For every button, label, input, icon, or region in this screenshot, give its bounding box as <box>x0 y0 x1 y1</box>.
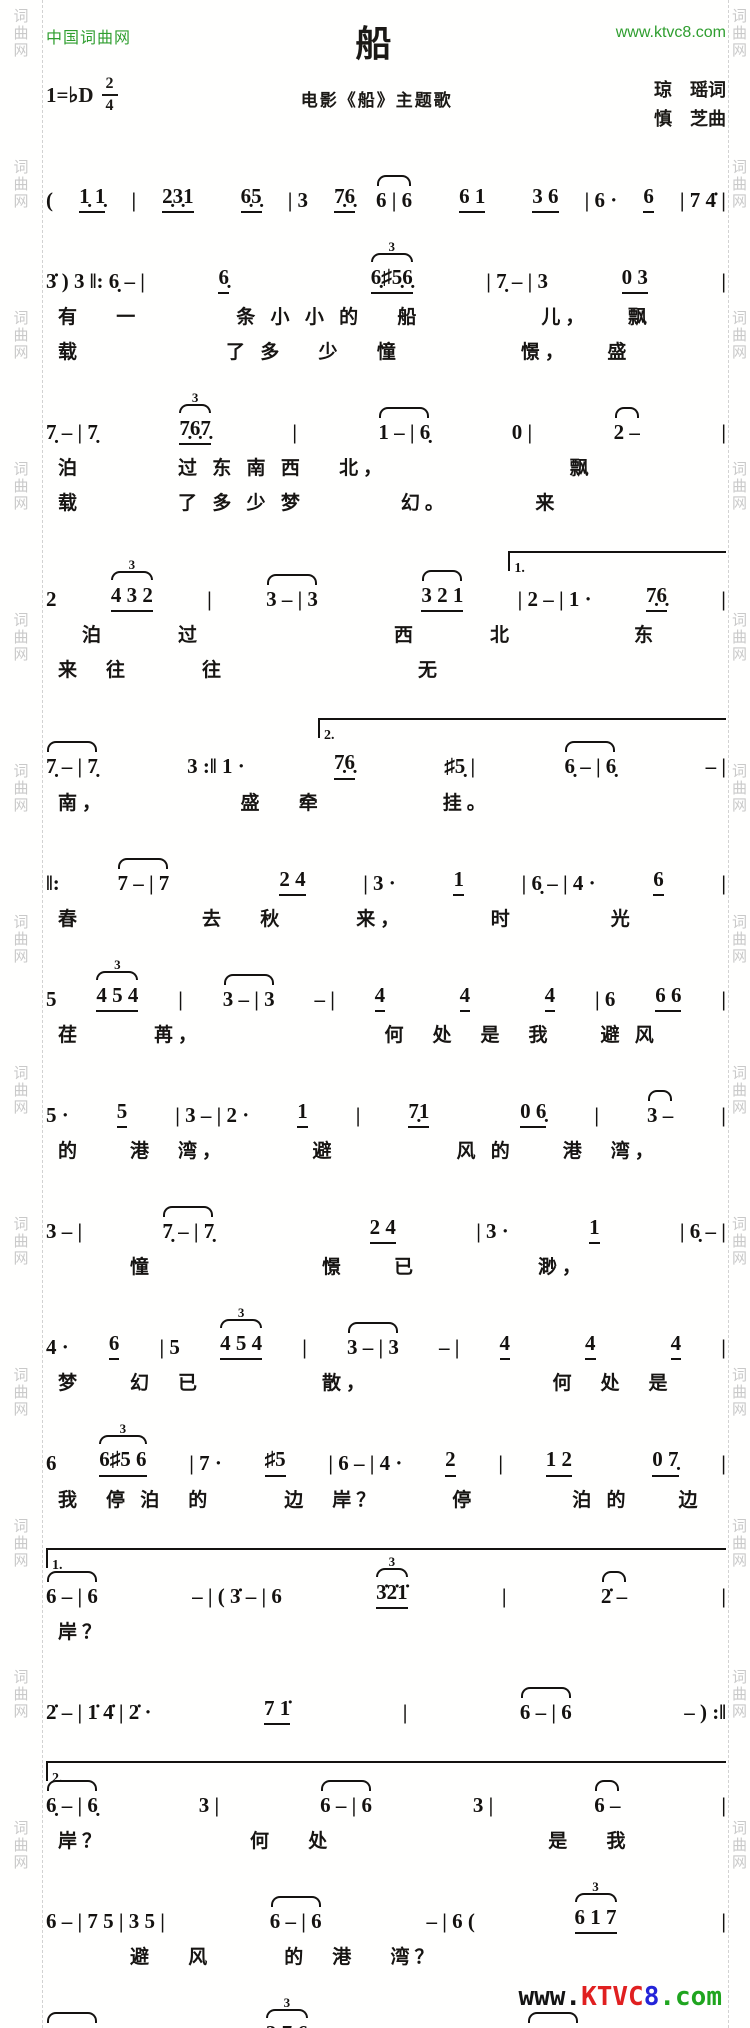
lyrics-line: 荏 苒， 何 处 是 我 避 风 <box>58 1020 726 1047</box>
notation-token: 4 <box>500 1331 511 1360</box>
notation-token: | <box>716 1335 726 1360</box>
watermark-char: 词 <box>0 1216 42 1233</box>
notation-token: | <box>716 987 726 1012</box>
watermark-text-group: 词曲网 <box>0 1518 42 1569</box>
watermark-text-group: 词曲网 <box>729 310 750 361</box>
watermark-char: 词 <box>729 914 750 931</box>
watermark-char: 词 <box>0 1669 42 1686</box>
lyrics-line: 南， 盛 牵 挂。 <box>58 788 726 815</box>
notation-token: 3 :‖ 1 · <box>182 754 250 779</box>
notation-token: 4 3 2 <box>111 583 153 612</box>
music-system-5: 2.7̣ – | 7̣ 3 :‖ 1 · 7̣6̣ ♯5̣ | 6̣ – | 6… <box>46 710 726 814</box>
notation-token: 7̣ – | 7̣ <box>46 420 103 445</box>
watermark-char: 词 <box>0 612 42 629</box>
notation-token: 1̣ 1̣ <box>79 184 105 213</box>
notation-token: 5 <box>117 1099 128 1128</box>
notation-token: | <box>716 1909 726 1934</box>
credits: 琼 瑶词 慎 芝曲 <box>636 76 726 134</box>
notation-token: 6 – | 6 <box>270 1909 322 1934</box>
volta-bracket: 1. <box>46 1548 726 1568</box>
watermark-char: 曲 <box>0 780 42 797</box>
song-title: 船 <box>355 26 391 62</box>
notation-line: 5 4 5 4 | 3 – | 3 – | 4 4 4 | 6 6 6 | <box>46 959 726 1012</box>
notation-token: | 7 · <box>184 1451 227 1476</box>
lyrics-line: 岸？ 何 处 是 我 <box>58 1826 726 1853</box>
notation-token: | 3 · <box>471 1219 514 1244</box>
notation-token <box>289 1219 294 1244</box>
notation-token: 5 · <box>46 1103 74 1128</box>
watermark-text-group: 词曲网 <box>0 612 42 663</box>
notation-token: | <box>589 1103 604 1128</box>
watermark-char: 网 <box>729 1552 750 1569</box>
notation-line: 4 · 6 | 5 4 5 4 | 3 – | 3 – | 4 4 4 | <box>46 1307 726 1360</box>
watermark-text-group: 词曲网 <box>0 310 42 361</box>
watermark-char: 曲 <box>0 176 42 193</box>
music-system-7: 5 4 5 4 | 3 – | 3 – | 4 4 4 | 6 6 6 |荏 苒… <box>46 959 726 1047</box>
notation-token: | 3 · <box>358 871 401 896</box>
watermark-char: 网 <box>729 1250 750 1267</box>
notation-token: 2 <box>46 587 62 612</box>
watermark-text-group: 词曲网 <box>729 612 750 663</box>
notation-token: 7̣6̣ <box>646 583 667 612</box>
watermark-char: 曲 <box>729 1535 750 1552</box>
notation-token: 6 1 7 <box>575 1905 617 1934</box>
watermark-char: 网 <box>0 646 42 663</box>
watermark-text-group: 词曲网 <box>0 1367 42 1418</box>
lyrics-line: 泊 过 东 南 西 北， 飘 <box>58 453 726 480</box>
notation-token: 4 <box>671 1331 682 1360</box>
watermark-text-group: 词曲网 <box>0 914 42 965</box>
notation-token: 6 <box>46 1451 62 1476</box>
lyrics-line: 来 往 往 无 <box>58 655 726 682</box>
watermark-char: 曲 <box>729 327 750 344</box>
watermark-char: 曲 <box>0 1082 42 1099</box>
watermark-char: 词 <box>0 1367 42 1384</box>
watermark-char: 词 <box>729 763 750 780</box>
notation-token: | 6 – | 4 · <box>323 1451 408 1476</box>
watermark-text-group: 词曲网 <box>729 1820 750 1871</box>
music-system-2: 3̇ ) 3 ‖: 6̣ – | 6̣ 6̣♯5̣6̣ | 7̣ – | 3 0… <box>46 241 726 364</box>
sheet-content: 中国词曲网 船 www.ktvc8.com 1=♭D 2 4 电影《船》主题歌 … <box>46 0 726 2028</box>
watermark-char: 曲 <box>729 931 750 948</box>
notation-token: 0 7̣ <box>652 1447 678 1476</box>
watermark-char: 曲 <box>729 1082 750 1099</box>
notation-token <box>610 1451 615 1476</box>
lyrics-line: 春 去 秋 来， 时 光 <box>58 904 726 931</box>
footer-logo-ktvc: KTVC <box>581 1982 644 2012</box>
notation-token: – ) :‖ <box>679 1700 726 1725</box>
notation-token: 6̣ – | 6̣ <box>564 754 616 779</box>
notation-token: 4 5 4 <box>220 1331 262 1360</box>
watermark-char: 网 <box>0 193 42 210</box>
watermark-char: 曲 <box>729 780 750 797</box>
notation-token: – | 6 ( <box>421 1909 475 1934</box>
notation-token: 0 3 <box>622 265 648 294</box>
notation-token: 6 <box>643 184 654 213</box>
notation-token: | 6̣ – | <box>675 1219 726 1244</box>
watermark-text-group: 词曲网 <box>729 914 750 965</box>
notation-token: | 3 – | 2 · <box>170 1103 255 1128</box>
notation-line: 2.6̣ – | 6̣ 3 | 6 – | 6 3 | 6 – | <box>46 1753 726 1818</box>
notation-token: | 2 – | 1 · <box>512 587 597 612</box>
notation-token: 6 <box>653 867 664 896</box>
watermark-char: 曲 <box>729 1384 750 1401</box>
notation-token: – | <box>434 1335 465 1360</box>
watermark-char: 网 <box>729 495 750 512</box>
watermark-text-group: 词曲网 <box>0 8 42 59</box>
watermark-char: 曲 <box>0 1384 42 1401</box>
footer-logo-www: www. <box>518 1982 581 2012</box>
notation-token: ‖: <box>46 871 65 896</box>
notation-token: | <box>716 269 726 294</box>
time-signature-top: 2 <box>102 76 118 96</box>
watermark-char: 曲 <box>0 1686 42 1703</box>
notation-token <box>420 987 425 1012</box>
volta-bracket: 1. <box>508 551 726 571</box>
notation-line: 5 · 5 | 3 – | 2 · 1 | 7̣1 0 6̣ | 3 – | <box>46 1075 726 1128</box>
music-system-9: 3 – | 7̣ – | 7̣ 2 4 | 3 · 1 | 6̣ – | 憧 憬… <box>46 1191 726 1279</box>
watermark-char: 网 <box>0 1250 42 1267</box>
notation-token: 6̣ <box>218 265 229 294</box>
notation-token: 2 4 <box>370 1215 396 1244</box>
notation-token: 1 2 <box>546 1447 572 1476</box>
notation-token: 2 – <box>614 420 640 445</box>
notation-token: | <box>493 1451 508 1476</box>
watermark-char: 曲 <box>729 629 750 646</box>
lyricist-credit: 琼 瑶词 <box>636 76 726 105</box>
watermark-text-group: 词曲网 <box>729 1518 750 1569</box>
notation-line: 3 – | 7̣ – | 7̣ 2 4 | 3 · 1 | 6̣ – | <box>46 1191 726 1244</box>
watermark-char: 曲 <box>0 931 42 948</box>
score: ( 1̣ 1̣ | 2̣3̣1 6̣5̣ | 3 7̣6̣6 | 6 6 1 3… <box>46 160 726 2028</box>
notation-token: 6̣ – | 6̣ <box>46 1793 98 1818</box>
top-bar: 中国词曲网 船 www.ktvc8.com <box>46 0 726 62</box>
watermark-char: 曲 <box>729 1233 750 1250</box>
notation-token: 7̣6̣ <box>334 184 355 213</box>
watermark-char: 网 <box>0 1854 42 1871</box>
watermark-char: 网 <box>729 948 750 965</box>
volta-bracket: 2. <box>318 718 726 738</box>
watermark-char: 网 <box>0 1401 42 1418</box>
song-subtitle: 电影《船》主题歌 <box>118 76 636 111</box>
watermark-text-group: 词曲网 <box>0 159 42 210</box>
notation-token: 3 6 <box>532 184 558 213</box>
notation-token: 6 – <box>594 1793 620 1818</box>
notation-token <box>433 188 438 213</box>
lyrics-line: 的 港 湾， 避 风 的 港 湾， <box>58 1136 726 1163</box>
watermark-char: 词 <box>729 1669 750 1686</box>
notation-token: 6 <box>109 1331 120 1360</box>
watermark-text-group: 词曲网 <box>729 461 750 512</box>
notation-token: 7̣1 <box>408 1099 429 1128</box>
music-system-3: 7̣ – | 7̣ 7̣6̣7̣ | 1 – | 6̣ 0 | 2 – |泊 过… <box>46 392 726 515</box>
watermark-char: 网 <box>729 1854 750 1871</box>
watermark-char: 网 <box>0 797 42 814</box>
notation-token: | <box>202 587 217 612</box>
site-url-link[interactable]: www.ktvc8.com <box>616 24 726 42</box>
lyrics-line: 岸？ <box>58 1617 726 1644</box>
music-system-10: 4 · 6 | 5 4 5 4 | 3 – | 3 – | 4 4 4 |梦 幻… <box>46 1307 726 1395</box>
notation-token: 4 <box>545 983 556 1012</box>
notation-token: 4 <box>460 983 471 1012</box>
watermark-char: 曲 <box>729 25 750 42</box>
watermark-char: 词 <box>729 1820 750 1837</box>
watermark-left-column: 词曲网词曲网词曲网词曲网词曲网词曲网词曲网词曲网词曲网词曲网词曲网词曲网词曲网 <box>0 0 43 2028</box>
notation-token: | 7̣ – | 3 <box>481 269 553 294</box>
watermark-char: 词 <box>0 310 42 327</box>
notation-token: 6 – | 6 <box>320 1793 372 1818</box>
watermark-text-group: 词曲网 <box>0 1216 42 1267</box>
watermark-text-group: 词曲网 <box>729 1065 750 1116</box>
notation-token <box>215 188 220 213</box>
watermark-char: 网 <box>729 646 750 663</box>
notation-token <box>506 188 511 213</box>
watermark-char: 词 <box>0 8 42 25</box>
volta-label: 1. <box>510 560 525 578</box>
notation-token: | <box>716 1584 726 1609</box>
lyrics-line: 梦 幻 已 散， 何 处 是 <box>58 1368 726 1395</box>
notation-token: | <box>173 987 188 1012</box>
notation-token: 2 4 <box>279 867 305 896</box>
music-system-11: 6 6♯5 6 | 7 · ♯5 | 6 – | 4 · 2 | 1 2 0 7… <box>46 1423 726 1511</box>
notation-token: | <box>397 1700 412 1725</box>
lyrics-line: 有 一 条 小 小 的 船 儿， 飘 <box>58 302 726 329</box>
music-system-6: ‖: 7 – | 7 2 4 | 3 · 1 | 6̣ – | 4 · 6 |春… <box>46 843 726 931</box>
notation-line: 1.2 4 3 2 | 3 – | 3 3 2 1 | 2 – | 1 · 7̣… <box>46 543 726 612</box>
watermark-char: 曲 <box>729 478 750 495</box>
notation-token: 6̣5̣ <box>241 184 262 213</box>
notation-token: | <box>716 587 726 612</box>
notation-token: 6 1 <box>459 184 485 213</box>
notation-token: 5 <box>46 987 62 1012</box>
watermark-text-group: 词曲网 <box>729 159 750 210</box>
footer-logo: www.KTVC8.com <box>518 1982 722 2012</box>
notation-token: 2̣3̣1 <box>162 184 194 213</box>
watermark-char: 网 <box>729 193 750 210</box>
notation-token: 7̣ – | 7̣ <box>162 1219 214 1244</box>
notation-token: 7̣6̣7̣ <box>179 416 211 445</box>
lyrics-line: 载 了 多 少 憧 憬， 盛 <box>58 337 726 364</box>
notation-token: 7̣ – | 7̣ <box>46 754 98 779</box>
time-signature: 2 4 <box>102 76 118 114</box>
footer-logo-8: 8 <box>644 1982 660 2012</box>
notation-token: ( <box>46 188 58 213</box>
notation-token: – | <box>700 754 726 779</box>
notation-token: 2̇ – | 1̇ 4̇ | 2̇ · <box>46 1700 157 1725</box>
notation-token: 2̇ – <box>601 1584 627 1609</box>
watermark-text-group: 词曲网 <box>729 8 750 59</box>
notation-line: 2̇ – | 1̇ 4̇ | 2̇ · 7 1̇ | 6 – | 6 – ) :… <box>46 1672 726 1725</box>
lyrics-line: 憧 憬 已 渺， <box>58 1252 726 1279</box>
notation-line: 3̇ ) 3 ‖: 6̣ – | 6̣ 6̣♯5̣6̣ | 7̣ – | 3 0… <box>46 241 726 294</box>
watermark-char: 曲 <box>0 1535 42 1552</box>
notation-token: | <box>287 420 302 445</box>
notation-token: 6̣♯5̣6̣ <box>371 265 413 294</box>
notation-token: 3 – | <box>46 1219 87 1244</box>
notation-token: 6 – | 7 5 | 3 5 | <box>46 1909 170 1934</box>
notation-token: 3̇2̇1̇ <box>376 1580 408 1609</box>
watermark-char: 词 <box>0 1518 42 1535</box>
composer-credit: 慎 芝曲 <box>636 105 726 134</box>
notation-token: | 6 <box>590 987 621 1012</box>
notation-token: | <box>297 1335 312 1360</box>
notation-token: 6 – | 6 <box>46 1584 98 1609</box>
notation-line: 7̣ – | 7̣ 7̣6̣7̣ | 1 – | 6̣ 0 | 2 – | <box>46 392 726 445</box>
watermark-char: 词 <box>0 1065 42 1082</box>
notation-token <box>367 587 372 612</box>
notation-token: 1 <box>453 867 464 896</box>
watermark-char: 词 <box>0 461 42 478</box>
watermark-char: 词 <box>0 159 42 176</box>
watermark-char: 词 <box>0 763 42 780</box>
music-system-8: 5 · 5 | 3 – | 2 · 1 | 7̣1 0 6̣ | 3 – |的 … <box>46 1075 726 1163</box>
music-system-12: 1.6 – | 6 – | ( 3̇ – | 6 3̇2̇1̇ | 2̇ – |… <box>46 1540 726 1644</box>
notation-token: 3̇ ) 3 ‖: 6̣ – | <box>46 269 150 294</box>
notation-line: 1.6 – | 6 – | ( 3̇ – | 6 3̇2̇1̇ | 2̇ – | <box>46 1540 726 1609</box>
notation-token: 3 | <box>468 1793 499 1818</box>
watermark-text-group: 词曲网 <box>729 763 750 814</box>
notation-token: | <box>716 1793 726 1818</box>
watermark-char: 网 <box>0 1552 42 1569</box>
notation-token: 7 – | 7 <box>117 871 169 896</box>
notation-token <box>630 1335 635 1360</box>
watermark-char: 曲 <box>0 1837 42 1854</box>
lyrics-line: 泊 过 西 北 东 <box>58 620 726 647</box>
notation-token: | <box>351 1103 366 1128</box>
notation-token: 1 <box>589 1215 600 1244</box>
watermark-char: 曲 <box>0 1233 42 1250</box>
notation-token: 0 | <box>507 420 538 445</box>
watermark-char: 词 <box>729 612 750 629</box>
watermark-char: 网 <box>0 1099 42 1116</box>
notation-token: | <box>126 188 141 213</box>
watermark-char: 网 <box>729 797 750 814</box>
footer-logo-com: .com <box>659 1982 722 2012</box>
site-name-link[interactable]: 中国词曲网 <box>46 24 131 48</box>
watermark-text-group: 词曲网 <box>729 1367 750 1418</box>
watermark-char: 曲 <box>0 478 42 495</box>
watermark-char: 词 <box>0 1820 42 1837</box>
watermark-char: 词 <box>729 1065 750 1082</box>
volta-bracket: 2. <box>46 1761 726 1781</box>
notation-token: 3 – <box>647 1103 673 1128</box>
watermark-char: 曲 <box>729 1837 750 1854</box>
notation-token: 4 · <box>46 1335 74 1360</box>
notation-token: 1 – | 6̣ <box>378 420 430 445</box>
watermark-text-group: 词曲网 <box>0 1820 42 1871</box>
music-system-1: ( 1̣ 1̣ | 2̣3̣1 6̣5̣ | 3 7̣6̣6 | 6 6 1 3… <box>46 160 726 213</box>
music-system-4: 1.2 4 3 2 | 3 – | 3 3 2 1 | 2 – | 1 · 7̣… <box>46 543 726 682</box>
notation-token: ♯5̣ | <box>439 754 480 779</box>
watermark-char: 曲 <box>0 629 42 646</box>
notation-token: 4 <box>585 1331 596 1360</box>
notation-token: | 6 · <box>579 188 622 213</box>
notation-token: 2 <box>445 1447 456 1476</box>
notation-token: 4 5 4 <box>96 983 138 1012</box>
time-signature-bottom: 4 <box>106 96 114 114</box>
notation-token <box>297 269 302 294</box>
notation-token: 3 – | 3 <box>347 1335 399 1360</box>
notation-token <box>222 871 227 896</box>
notation-token: 3 – | 3 <box>223 987 275 1012</box>
watermark-char: 网 <box>0 495 42 512</box>
watermark-text-group: 词曲网 <box>729 1669 750 1720</box>
notation-token: 1 <box>297 1099 308 1128</box>
lyrics-line: 我 停 泊 的 边 岸？ 停 泊 的 边 <box>58 1485 726 1512</box>
notation-token: – | ( 3̇ – | 6 <box>187 1584 287 1609</box>
watermark-char: 曲 <box>729 176 750 193</box>
notation-token: | 7 4̇ | <box>675 188 726 213</box>
notation-token: 3 2 1 <box>421 583 463 612</box>
notation-token: 6 – | 6 <box>520 1700 572 1725</box>
key-signature-text: 1=♭D <box>46 83 94 108</box>
notation-token: | 5 <box>154 1335 185 1360</box>
watermark-char: 网 <box>0 42 42 59</box>
watermark-char: 网 <box>729 1401 750 1418</box>
watermark-char: 网 <box>0 344 42 361</box>
watermark-char: 网 <box>729 1099 750 1116</box>
watermark-char: 词 <box>729 159 750 176</box>
notation-token: | 6̣ – | 4 · <box>516 871 601 896</box>
watermark-text-group: 词曲网 <box>0 461 42 512</box>
watermark-char: 网 <box>0 948 42 965</box>
watermark-char: 网 <box>729 344 750 361</box>
watermark-char: 词 <box>729 1518 750 1535</box>
notation-token: 7 1̇ <box>264 1696 290 1725</box>
notation-token: 6 6 <box>655 983 681 1012</box>
watermark-char: 词 <box>729 1216 750 1233</box>
notation-line: ( 1̣ 1̣ | 2̣3̣1 6̣5̣ | 3 7̣6̣6 | 6 6 1 3… <box>46 160 726 213</box>
music-system-15: 6 – | 7 5 | 3 5 | 6 – | 6 – | 6 (6 1 7 |… <box>46 1881 726 1969</box>
watermark-char: 曲 <box>0 327 42 344</box>
watermark-char: 曲 <box>729 1686 750 1703</box>
notation-token <box>505 987 510 1012</box>
notation-token: 7̣6̣ <box>334 750 355 779</box>
notation-token: 4 <box>375 983 386 1012</box>
notation-token: | <box>716 420 726 445</box>
watermark-char: 词 <box>0 914 42 931</box>
lyrics-line: 避 风 的 港 湾？ <box>58 1942 726 1969</box>
notation-token: 3 7 6 <box>266 2021 308 2028</box>
notation-token: 3 | <box>194 1793 225 1818</box>
notation-token: | 3 <box>282 188 313 213</box>
watermark-char: 网 <box>0 1703 42 1720</box>
music-system-14: 2.6̣ – | 6̣ 3 | 6 – | 6 3 | 6 – |岸？ 何 处 … <box>46 1753 726 1853</box>
watermark-text-group: 词曲网 <box>729 1216 750 1267</box>
notation-line: 6 6♯5 6 | 7 · ♯5 | 6 – | 4 · 2 | 1 2 0 7… <box>46 1423 726 1476</box>
watermark-char: 词 <box>729 461 750 478</box>
meta-row: 1=♭D 2 4 电影《船》主题歌 琼 瑶词 慎 芝曲 <box>46 76 726 134</box>
notation-token: – | <box>309 987 340 1012</box>
notation-line: 2.7̣ – | 7̣ 3 :‖ 1 · 7̣6̣ ♯5̣ | 6̣ – | 6… <box>46 710 726 779</box>
lyrics-line: 载 了 多 少 梦 幻。 来 <box>58 488 726 515</box>
key-signature: 1=♭D 2 4 <box>46 76 118 114</box>
notation-line: 6 – | 7 5 | 3 5 | 6 – | 6 – | 6 (6 1 7 | <box>46 1881 726 1934</box>
watermark-char: 词 <box>729 310 750 327</box>
sheet-music-page: 词曲网词曲网词曲网词曲网词曲网词曲网词曲网词曲网词曲网词曲网词曲网词曲网词曲网 … <box>0 0 750 2028</box>
notation-token: | <box>497 1584 512 1609</box>
watermark-char: 曲 <box>0 25 42 42</box>
watermark-right-column: 词曲网词曲网词曲网词曲网词曲网词曲网词曲网词曲网词曲网词曲网词曲网词曲网词曲网 <box>728 0 750 2028</box>
watermark-text-group: 词曲网 <box>0 1669 42 1720</box>
notation-token: 6 | 6 <box>376 188 412 213</box>
notation-token: | <box>716 1451 726 1476</box>
notation-token <box>545 1335 550 1360</box>
watermark-text-group: 词曲网 <box>0 1065 42 1116</box>
notation-line: ‖: 7 – | 7 2 4 | 3 · 1 | 6̣ – | 4 · 6 | <box>46 843 726 896</box>
watermark-char: 网 <box>729 42 750 59</box>
watermark-text-group: 词曲网 <box>0 763 42 814</box>
